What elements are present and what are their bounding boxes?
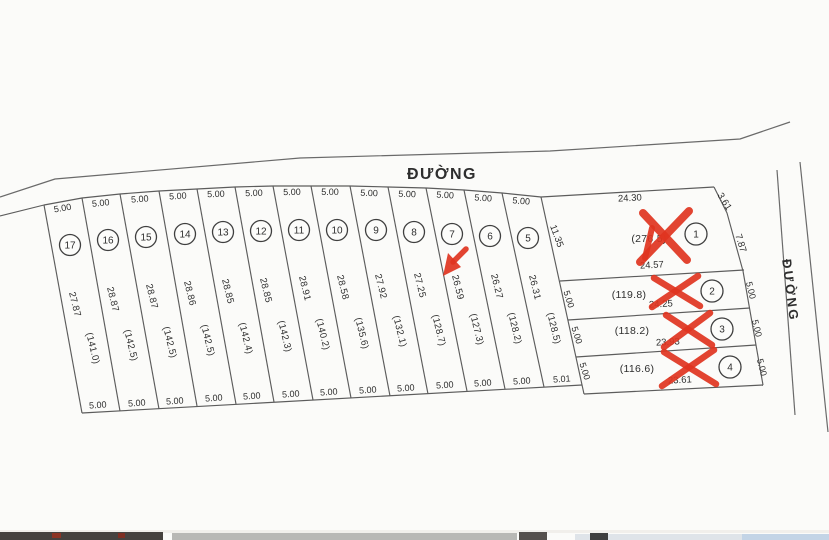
- plot-7-bottom-width: 5.00: [474, 377, 492, 388]
- plot-1-number: 1: [693, 230, 699, 241]
- plot-10-area: (135.6): [352, 316, 370, 350]
- plot-14-area: (142.5): [198, 323, 216, 357]
- plot-9-length: 27.92: [372, 273, 389, 300]
- plot-17: 5.00 17 27.87 (141.0) 5.00: [53, 202, 107, 411]
- plot-16-top-width: 5.00: [91, 197, 109, 209]
- plot-16-number: 16: [102, 236, 114, 247]
- right-road-right-edge: [800, 162, 828, 432]
- top-road: ĐƯỜNG: [0, 122, 790, 197]
- plot-12: 5.00 12 28.85 (142.3) 5.00: [245, 188, 300, 400]
- plot-5-bottom-width: 5.01: [553, 373, 571, 384]
- plot-3-number: 3: [719, 325, 725, 336]
- plot-8-bottom-width: 5.00: [436, 379, 454, 390]
- plot-2-left-edge: 5.00: [562, 289, 577, 309]
- plot-10-bottom-width: 5.00: [359, 384, 377, 395]
- cadastral-map-scan: ĐƯỜNG ĐƯỜNG: [0, 0, 829, 540]
- plot-10-number: 10: [331, 226, 343, 237]
- plot-14-top-width: 5.00: [169, 191, 187, 202]
- top-road-upper-edge: [0, 122, 790, 197]
- top-road-label: ĐƯỜNG: [407, 164, 477, 183]
- plot-14-bottom-width: 5.00: [205, 392, 223, 403]
- plot-14: 5.00 14 28.86 (142.5) 5.00: [169, 191, 223, 404]
- plot-10-length: 28.58: [334, 274, 351, 301]
- plot-4-left-edge: 5.00: [578, 361, 593, 381]
- plot-5-top-width: 5.00: [512, 195, 530, 206]
- plot-3-area: (118.2): [615, 325, 650, 337]
- plot-3-left-edge: 5.00: [570, 325, 585, 345]
- land-plot-drawing: ĐƯỜNG ĐƯỜNG: [0, 0, 829, 540]
- plot-11-length: 28.91: [296, 275, 313, 302]
- plot-7: 5.00 7 26.59 (127.3) 5.00: [436, 190, 492, 389]
- plot-13: 5.00 13 28.85 (142.4) 5.00: [207, 189, 261, 402]
- plot-5-number: 5: [525, 234, 531, 245]
- plot-16: 5.00 16 28.87 (142.5) 5.00: [91, 197, 145, 408]
- plot-17-area: (141.0): [83, 331, 101, 365]
- plot-11: 5.00 11 28.91 (140.2) 5.00: [283, 187, 338, 398]
- plot-12-top-width: 5.00: [245, 188, 263, 198]
- plot-13-top-width: 5.00: [207, 189, 225, 200]
- sold-cross-plot-1: [640, 211, 689, 262]
- plot-6-length: 26.27: [488, 273, 505, 300]
- plot-8-area: (128.7): [429, 313, 447, 347]
- plot-9-top-width: 5.00: [360, 188, 378, 198]
- plot-13-number: 13: [217, 228, 229, 239]
- plot-6-bottom-width: 5.00: [513, 375, 531, 386]
- plot-6-area: (128.2): [505, 311, 523, 345]
- plot-5-area: (128.5): [544, 311, 562, 345]
- plot-15-number: 15: [140, 233, 152, 244]
- plot-17-bottom-width: 5.00: [89, 399, 107, 410]
- plot-10-top-width: 5.00: [321, 187, 339, 197]
- plot-7-top-width: 5.00: [436, 190, 454, 201]
- plot-13-bottom-width: 5.00: [243, 390, 261, 401]
- plot-6-top-width: 5.00: [474, 192, 492, 203]
- plot-8-number: 8: [411, 228, 417, 239]
- sold-cross-plot-2: [652, 276, 700, 307]
- plot-2-number: 2: [709, 287, 715, 298]
- plot-9: 5.00 9 27.92 (132.1) 5.00: [360, 188, 415, 394]
- plot-16-length: 28.87: [104, 286, 121, 313]
- plot-6-number: 6: [487, 232, 493, 243]
- plot-7-length: 26.59: [449, 274, 466, 301]
- plot-15-length: 28.87: [143, 283, 160, 310]
- plot-8-length: 27.25: [411, 272, 428, 299]
- plot-11-number: 11: [294, 226, 305, 237]
- plot-2-right-edge: 5.00: [744, 281, 758, 300]
- plot-12-bottom-width: 5.00: [282, 388, 300, 399]
- plot-8-top-width: 5.00: [398, 189, 416, 200]
- red-arrow-plot-7: [443, 249, 466, 276]
- plot-15-bottom-width: 5.00: [166, 395, 184, 406]
- plot-15-top-width: 5.00: [131, 193, 149, 204]
- plot-14-length: 28.86: [181, 280, 198, 307]
- plot-3-right-edge: 5.00: [750, 319, 764, 338]
- plot-11-area: (140.2): [313, 317, 331, 351]
- plot-4-right-edge: 5.00: [755, 358, 769, 377]
- plot-16-area: (142.5): [121, 328, 139, 362]
- plot-13-area: (142.4): [236, 321, 254, 355]
- plot-9-area: (132.1): [390, 314, 408, 348]
- plot-9-number: 9: [373, 226, 379, 237]
- plot-5: 5.00 5 26.31 (128.5) 5.01: [512, 195, 571, 384]
- right-road: ĐƯỜNG: [777, 162, 828, 432]
- plot-17-number: 17: [64, 241, 76, 252]
- plot-11-top-width: 5.00: [283, 187, 301, 197]
- photo-bottom-edge: [0, 530, 829, 540]
- right-road-label: ĐƯỜNG: [779, 258, 802, 323]
- plot-10: 5.00 10 28.58 (135.6) 5.00: [321, 187, 377, 396]
- plot-8: 5.00 8 27.25 (128.7) 5.00: [398, 189, 454, 391]
- plot-1-right-edge: 7.87: [732, 233, 748, 254]
- plot-1-corner-edge: 3.61: [715, 191, 734, 213]
- plot-9-bottom-width: 5.00: [397, 382, 415, 393]
- sold-cross-plot-3: [664, 313, 712, 347]
- plot-12-length: 28.85: [257, 277, 274, 304]
- plot-14-number: 14: [179, 230, 191, 241]
- plot-4-number: 4: [727, 363, 733, 374]
- plot-4-area: (116.6): [620, 363, 655, 375]
- plot-13-length: 28.85: [219, 278, 236, 305]
- plot-5-length: 26.31: [526, 274, 543, 301]
- plot-12-area: (142.3): [275, 319, 293, 353]
- strip-plot-labels: 5.00 17 27.87 (141.0) 5.00 5.00 16 28.87…: [53, 187, 571, 411]
- plot-12-number: 12: [255, 227, 267, 238]
- plot-7-number: 7: [449, 230, 455, 241]
- plot-1-top-edge: 24.30: [618, 192, 642, 204]
- plot-11-bottom-width: 5.00: [320, 386, 338, 397]
- plot-17-length: 27.87: [66, 291, 83, 318]
- row-line-plot4-bottom: [584, 385, 763, 394]
- plot-2-area: (119.8): [612, 289, 647, 301]
- plot-15-area: (142.5): [160, 325, 178, 359]
- plot-17-top-width: 5.00: [53, 202, 72, 215]
- plot-7-area: (127.3): [467, 312, 485, 346]
- plot-16-bottom-width: 5.00: [128, 397, 146, 408]
